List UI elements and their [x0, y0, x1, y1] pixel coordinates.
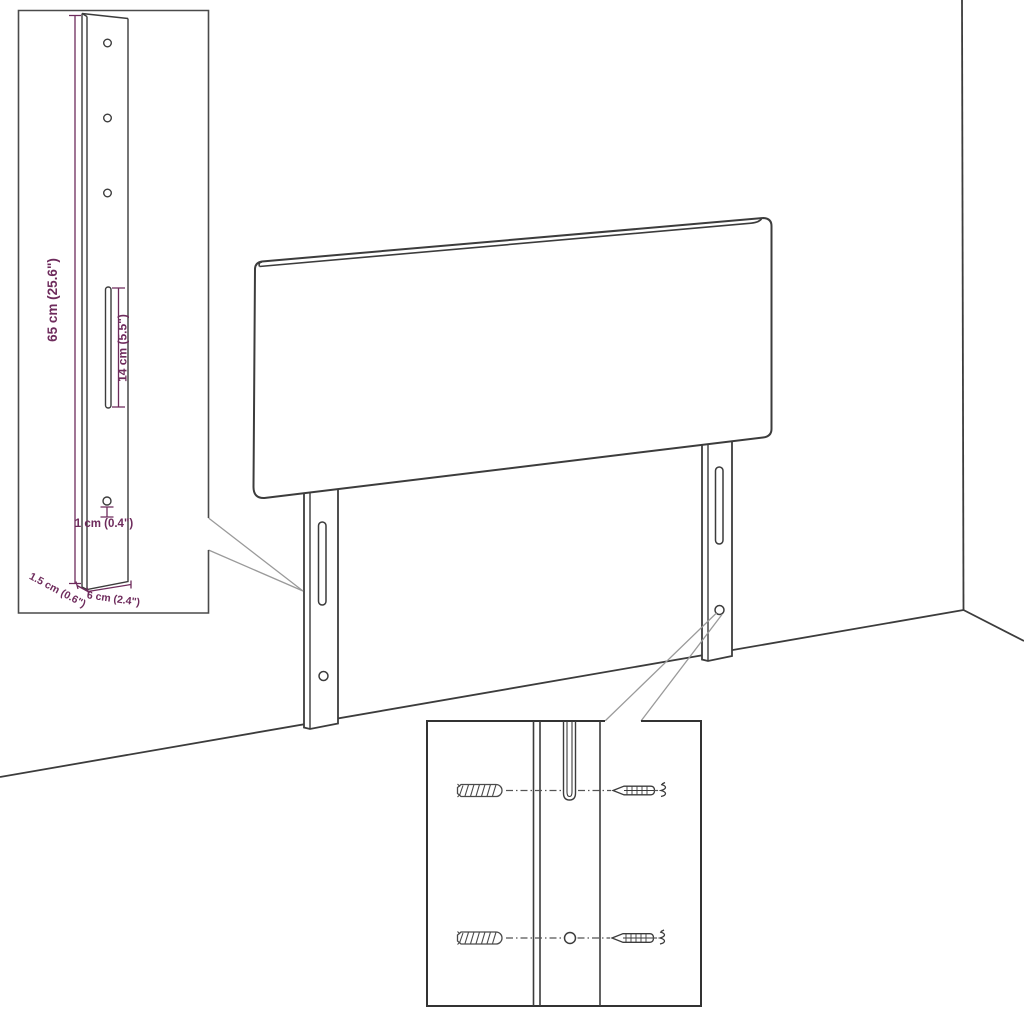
assembly-diagram: 65 cm (25.6") 14 cm (5.5") 1 cm (0.4") 1…: [0, 0, 1024, 1024]
callout-lines: [209, 518, 723, 721]
floor-line-right: [964, 610, 1024, 641]
hardware-detail-inset: [427, 721, 701, 1006]
diagram-canvas: 65 cm (25.6") 14 cm (5.5") 1 cm (0.4") 1…: [0, 0, 1024, 1024]
dimension-slot-label: 14 cm (5.5"): [116, 314, 130, 382]
callout-right-lower: [641, 615, 722, 722]
headboard-leg-right: [702, 440, 732, 661]
headboard-panel: [254, 218, 772, 498]
callout-right-upper: [605, 613, 717, 721]
dimension-hole-label: 1 cm (0.4"): [75, 518, 134, 530]
bracket-detail-inset: 65 cm (25.6") 14 cm (5.5") 1 cm (0.4") 1…: [19, 11, 209, 614]
wall-corner-line: [962, 0, 964, 610]
headboard-leg-left: [304, 487, 338, 729]
callout-left-lower: [209, 550, 304, 591]
dimension-height-label: 65 cm (25.6"): [45, 258, 60, 342]
callout-left-upper: [209, 518, 304, 591]
